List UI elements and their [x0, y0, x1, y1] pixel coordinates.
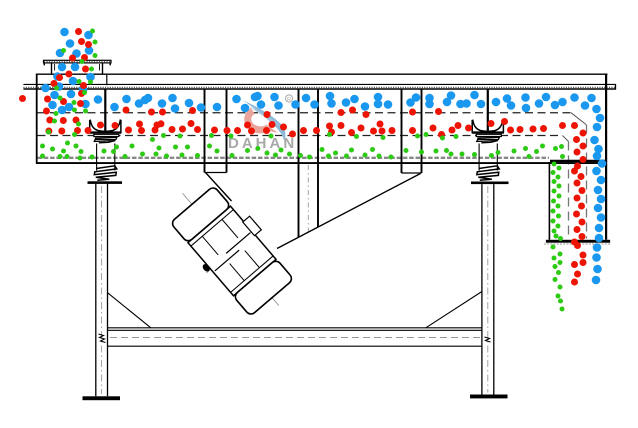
- svg-text:R: R: [287, 97, 291, 103]
- svg-text:DAHAN: DAHAN: [228, 135, 297, 152]
